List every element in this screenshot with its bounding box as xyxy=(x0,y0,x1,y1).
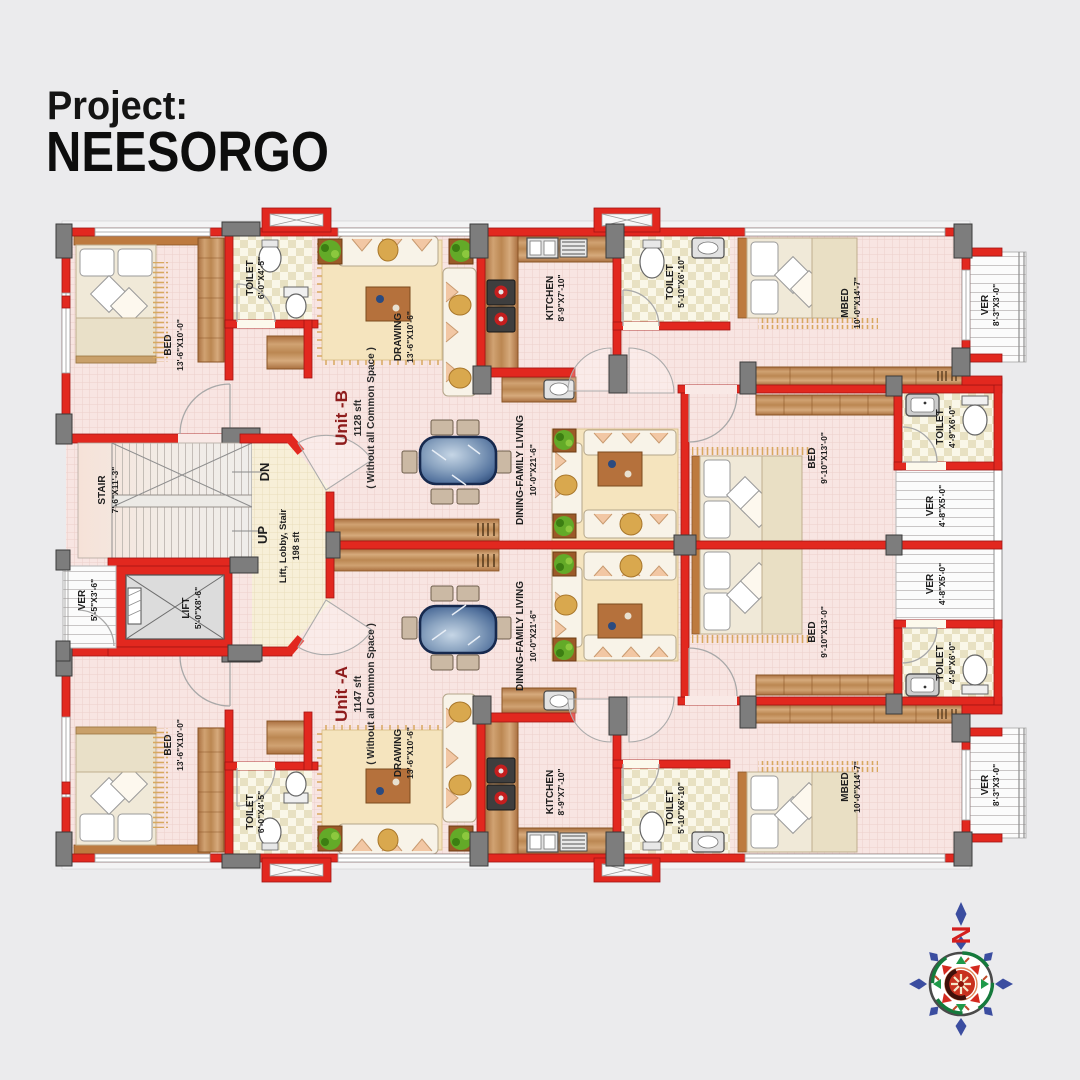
svg-text:Unit -A: Unit -A xyxy=(332,666,351,722)
svg-text:4'-9"X6'-0": 4'-9"X6'-0" xyxy=(947,406,957,448)
svg-text:1147 sft: 1147 sft xyxy=(353,675,364,712)
svg-text:10'-0"X21'-6": 10'-0"X21'-6" xyxy=(528,610,538,662)
svg-text:10'-0"X14'-7": 10'-0"X14'-7" xyxy=(852,761,862,813)
svg-text:VER: VER xyxy=(925,495,936,516)
svg-text:13'-6"X10'-6": 13'-6"X10'-6" xyxy=(405,311,415,363)
svg-text:MBED: MBED xyxy=(840,288,851,317)
svg-text:MBED: MBED xyxy=(840,772,851,801)
svg-text:13'-6"X10'-0": 13'-6"X10'-0" xyxy=(175,719,185,771)
svg-text:LIFT: LIFT xyxy=(181,597,192,618)
svg-text:DINING-FAMILY LIVING: DINING-FAMILY LIVING xyxy=(515,581,526,691)
svg-text:5'-0"X8'-6": 5'-0"X8'-6" xyxy=(193,587,203,629)
svg-text:10'-0"X21'-6": 10'-0"X21'-6" xyxy=(528,444,538,496)
svg-text:VER: VER xyxy=(77,589,88,610)
svg-text:N: N xyxy=(946,926,976,945)
svg-text:( Without all Common Space ): ( Without all Common Space ) xyxy=(366,623,377,765)
svg-text:Unit -B: Unit -B xyxy=(332,390,351,446)
svg-text:STAIR: STAIR xyxy=(97,475,108,505)
svg-text:( Without all Common Space ): ( Without all Common Space ) xyxy=(366,347,377,489)
svg-text:VER: VER xyxy=(980,294,991,315)
svg-text:DN: DN xyxy=(257,463,272,482)
svg-text:KITCHEN: KITCHEN xyxy=(545,276,556,320)
svg-text:BED: BED xyxy=(163,334,174,355)
svg-text:13'-6"X10'-0": 13'-6"X10'-0" xyxy=(175,319,185,371)
svg-text:198 sft: 198 sft xyxy=(291,532,301,561)
svg-text:5'-10"X6'-10": 5'-10"X6'-10" xyxy=(676,256,686,308)
svg-text:4'-8"X5'-0": 4'-8"X5'-0" xyxy=(937,485,947,527)
svg-text:BED: BED xyxy=(807,621,818,642)
svg-text:8'-3"X3'-0": 8'-3"X3'-0" xyxy=(991,284,1001,326)
svg-text:TOILET: TOILET xyxy=(935,645,946,680)
svg-text:4'-8"X5'-0": 4'-8"X5'-0" xyxy=(937,563,947,605)
svg-text:9'-10"X13'-0": 9'-10"X13'-0" xyxy=(819,432,829,484)
svg-text:8'-3"X3'-0": 8'-3"X3'-0" xyxy=(991,764,1001,806)
svg-text:6'-0"X4'-5": 6'-0"X4'-5" xyxy=(256,791,266,833)
svg-text:8'-9"X7'-10": 8'-9"X7'-10" xyxy=(556,768,566,815)
svg-text:6'-0"X4'-5": 6'-0"X4'-5" xyxy=(256,257,266,299)
svg-text:NEESORGO: NEESORGO xyxy=(46,120,329,184)
svg-text:TOILET: TOILET xyxy=(665,790,676,825)
svg-text:5'-5"X3'-6": 5'-5"X3'-6" xyxy=(89,579,99,621)
svg-text:TOILET: TOILET xyxy=(245,794,256,829)
svg-text:TOILET: TOILET xyxy=(665,264,676,299)
svg-text:1128 sft: 1128 sft xyxy=(353,399,364,436)
svg-text:DINING-FAMILY LIVING: DINING-FAMILY LIVING xyxy=(515,415,526,525)
svg-text:DRAWING: DRAWING xyxy=(393,313,404,362)
svg-text:10'-0"X14'-7": 10'-0"X14'-7" xyxy=(852,277,862,329)
svg-text:9'-10"X13'-0": 9'-10"X13'-0" xyxy=(819,606,829,658)
svg-text:BED: BED xyxy=(807,447,818,468)
svg-text:DRAWING: DRAWING xyxy=(393,729,404,778)
svg-text:VER: VER xyxy=(925,573,936,594)
svg-text:4'-9"X6'-0": 4'-9"X6'-0" xyxy=(947,642,957,684)
svg-text:UP: UP xyxy=(255,526,270,544)
svg-text:13'-6"X10'-6": 13'-6"X10'-6" xyxy=(405,727,415,779)
svg-text:7'-6"X11'-3": 7'-6"X11'-3" xyxy=(110,467,120,514)
svg-text:8'-9"X7'-10": 8'-9"X7'-10" xyxy=(556,274,566,321)
svg-text:TOILET: TOILET xyxy=(935,409,946,444)
svg-text:VER: VER xyxy=(980,774,991,795)
svg-text:5'-10"X6'-10": 5'-10"X6'-10" xyxy=(676,782,686,834)
svg-text:Lift, Lobby, Stair: Lift, Lobby, Stair xyxy=(278,509,289,584)
svg-text:BED: BED xyxy=(163,734,174,755)
svg-text:KITCHEN: KITCHEN xyxy=(545,770,556,814)
svg-text:TOILET: TOILET xyxy=(245,260,256,295)
